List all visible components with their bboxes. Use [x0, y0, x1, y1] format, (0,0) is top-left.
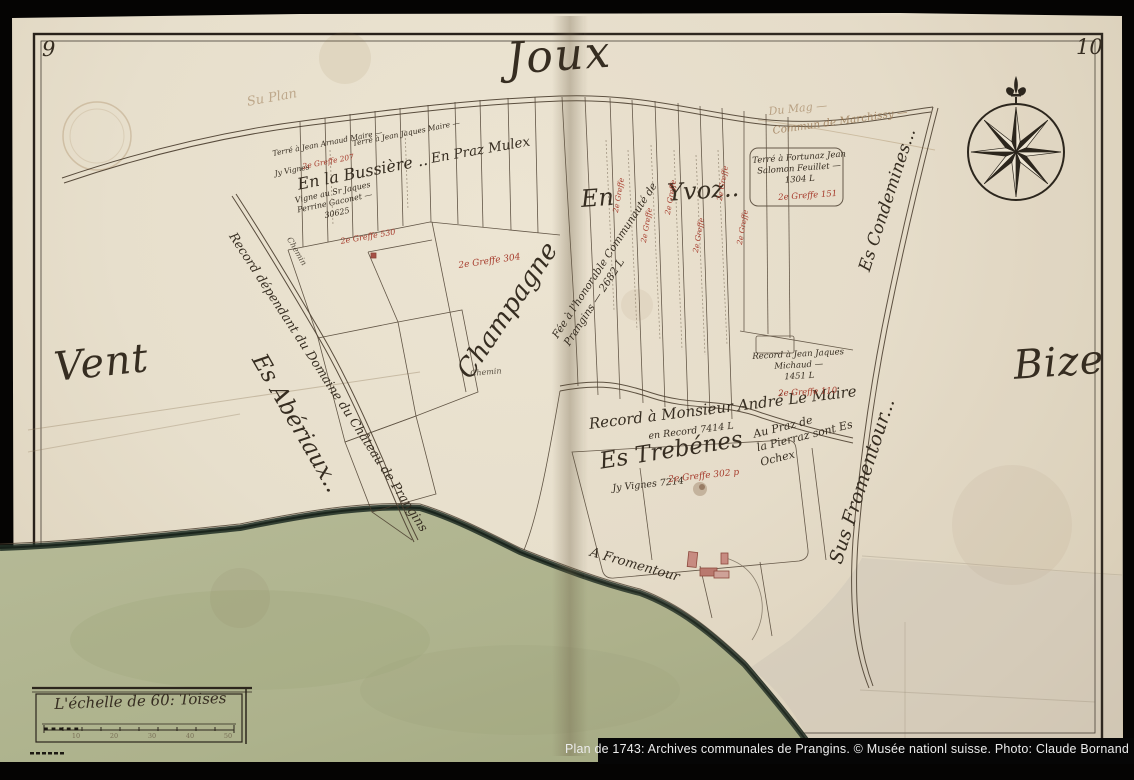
- map-artwork: [0, 0, 1134, 780]
- scale-tick-30: 30: [144, 732, 160, 740]
- scale-tick-50: 50: [220, 732, 236, 740]
- scale-tick-20: 20: [106, 732, 122, 740]
- scanned-map-photo: 9 10 Joux Vent Bize En la Bussière .. En…: [0, 0, 1134, 780]
- scale-tick-40: 40: [182, 732, 198, 740]
- caption: Plan de 1743: Archives communales de Pra…: [565, 742, 1129, 756]
- scale-tick-10: 10: [68, 732, 84, 740]
- page-fold-shadow: [552, 16, 588, 756]
